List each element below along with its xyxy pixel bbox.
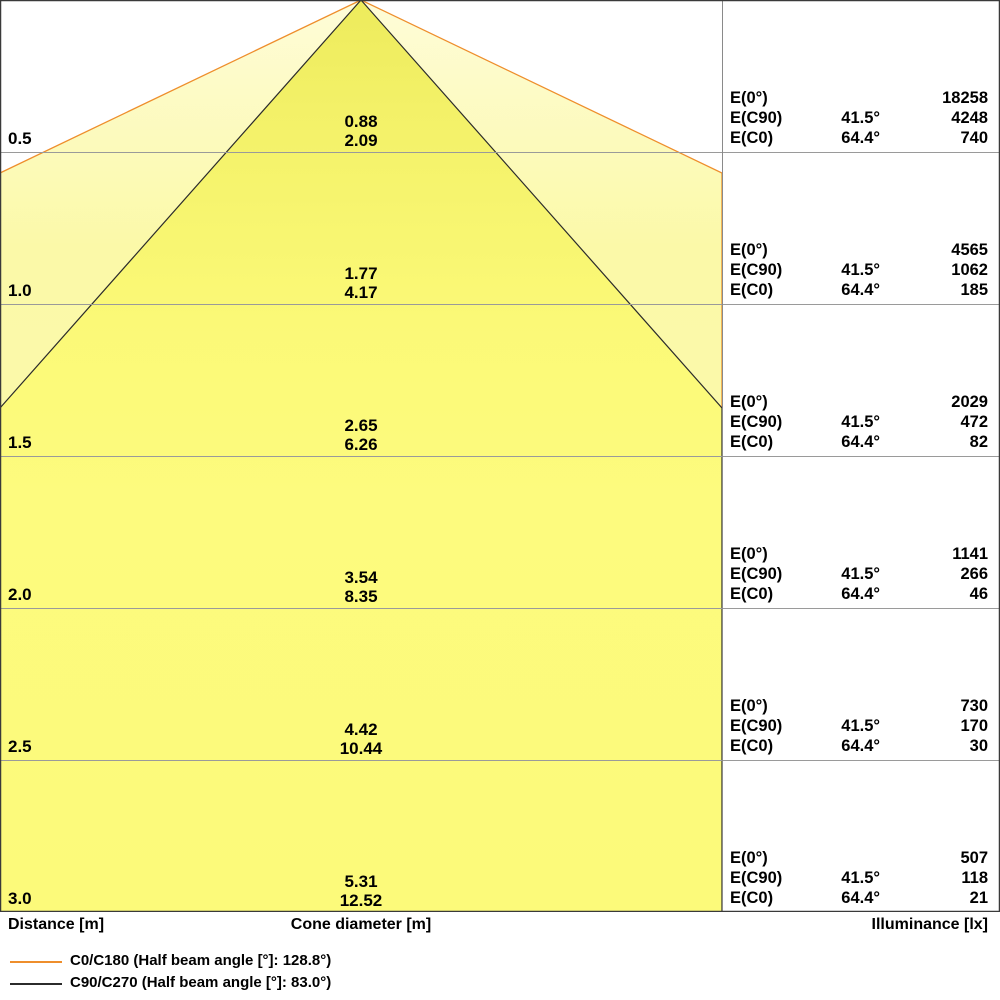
row-band: 0.5 0.88 2.09 E(0°)18258 E(C90)41.5°4248… — [0, 0, 1000, 152]
illuminance-table-cell: E(0°)1141 E(C90)41.5°266 E(C0)64.4°46 — [722, 545, 1000, 605]
cone-diameter-values: 3.54 8.35 — [0, 568, 722, 606]
ec0-angle: 64.4° — [841, 433, 880, 452]
ec90-angle: 41.5° — [841, 261, 880, 280]
ec0-label: E(C0) — [730, 585, 773, 604]
e0-value: 4565 — [951, 241, 988, 260]
e0-value: 18258 — [942, 89, 988, 108]
ec0-value: 185 — [960, 281, 988, 300]
ec90-value: 472 — [960, 413, 988, 432]
ec0-label: E(C0) — [730, 737, 773, 756]
cone-diameter-axis-label: Cone diameter [m] — [0, 916, 722, 934]
cone-diameter-c0: 10.44 — [0, 739, 722, 758]
c90-c270-line-swatch — [10, 983, 62, 985]
cone-diameter-c90: 2.65 — [0, 416, 722, 435]
illuminance-table-cell: E(0°)2029 E(C90)41.5°472 E(C0)64.4°82 — [722, 393, 1000, 453]
c0-c180-line-swatch — [10, 961, 62, 963]
ec90-label: E(C90) — [730, 109, 782, 128]
e0-label: E(0°) — [730, 393, 768, 412]
ec0-value: 21 — [970, 889, 988, 908]
ec90-value: 1062 — [951, 261, 988, 280]
ec0-angle: 64.4° — [841, 737, 880, 756]
ec90-angle: 41.5° — [841, 413, 880, 432]
ec0-angle: 64.4° — [841, 585, 880, 604]
cone-diameter-values: 0.88 2.09 — [0, 112, 722, 150]
illuminance-table-cell: E(0°)18258 E(C90)41.5°4248 E(C0)64.4°740 — [722, 89, 1000, 149]
legend-label: C0/C180 (Half beam angle [°]: 128.8°) — [70, 952, 331, 969]
light-cone-diagram: 0.5 0.88 2.09 E(0°)18258 E(C90)41.5°4248… — [0, 0, 1000, 1000]
ec90-angle: 41.5° — [841, 717, 880, 736]
legend-item-c90-c270: C90/C270 (Half beam angle [°]: 83.0°) — [0, 973, 1000, 995]
illuminance-axis-label: Illuminance [lx] — [872, 916, 988, 934]
illuminance-table-cell: E(0°)507 E(C90)41.5°118 E(C0)64.4°21 — [722, 849, 1000, 909]
cone-diameter-c90: 4.42 — [0, 720, 722, 739]
cone-diameter-c90: 3.54 — [0, 568, 722, 587]
ec0-angle: 64.4° — [841, 889, 880, 908]
e0-label: E(0°) — [730, 89, 768, 108]
ec0-value: 30 — [970, 737, 988, 756]
legend: C0/C180 (Half beam angle [°]: 128.8°) C9… — [0, 951, 1000, 995]
e0-value: 1141 — [952, 545, 988, 564]
e0-label: E(0°) — [730, 697, 768, 716]
cone-diameter-values: 1.77 4.17 — [0, 264, 722, 302]
row-band: 3.0 5.31 12.52 E(0°)507 E(C90)41.5°118 E… — [0, 760, 1000, 912]
cone-diameter-c90: 0.88 — [0, 112, 722, 131]
ec90-angle: 41.5° — [841, 565, 880, 584]
legend-label: C90/C270 (Half beam angle [°]: 83.0°) — [70, 974, 331, 991]
cone-diameter-c0: 12.52 — [0, 891, 722, 910]
ec90-value: 170 — [960, 717, 988, 736]
e0-label: E(0°) — [730, 545, 768, 564]
legend-item-c0-c180: C0/C180 (Half beam angle [°]: 128.8°) — [0, 951, 1000, 973]
e0-value: 2029 — [951, 393, 988, 412]
illuminance-table-cell: E(0°)730 E(C90)41.5°170 E(C0)64.4°30 — [722, 697, 1000, 757]
ec90-label: E(C90) — [730, 565, 782, 584]
cone-diameter-c0: 8.35 — [0, 587, 722, 606]
cone-diameter-c0: 4.17 — [0, 283, 722, 302]
row-band: 1.0 1.77 4.17 E(0°)4565 E(C90)41.5°1062 … — [0, 152, 1000, 304]
ec90-label: E(C90) — [730, 261, 782, 280]
axis-labels-row: Distance [m] Cone diameter [m] Illuminan… — [0, 916, 1000, 938]
cone-diameter-values: 2.65 6.26 — [0, 416, 722, 454]
ec90-value: 118 — [961, 869, 988, 888]
ec90-label: E(C90) — [730, 869, 782, 888]
ec0-label: E(C0) — [730, 281, 773, 300]
ec90-label: E(C90) — [730, 717, 782, 736]
ec0-label: E(C0) — [730, 129, 773, 148]
row-band: 2.5 4.42 10.44 E(0°)730 E(C90)41.5°170 E… — [0, 608, 1000, 760]
cone-diameter-c0: 6.26 — [0, 435, 722, 454]
ec90-value: 266 — [960, 565, 988, 584]
illuminance-table-cell: E(0°)4565 E(C90)41.5°1062 E(C0)64.4°185 — [722, 241, 1000, 301]
ec0-label: E(C0) — [730, 889, 773, 908]
ec0-value: 740 — [960, 129, 988, 148]
ec0-label: E(C0) — [730, 433, 773, 452]
cone-diameter-c90: 1.77 — [0, 264, 722, 283]
cone-diameter-c0: 2.09 — [0, 131, 722, 150]
cone-diameter-values: 5.31 12.52 — [0, 872, 722, 910]
e0-label: E(0°) — [730, 241, 768, 260]
ec90-angle: 41.5° — [841, 869, 880, 888]
ec0-angle: 64.4° — [841, 281, 880, 300]
cone-diameter-values: 4.42 10.44 — [0, 720, 722, 758]
e0-label: E(0°) — [730, 849, 768, 868]
ec90-value: 4248 — [951, 109, 988, 128]
row-band: 1.5 2.65 6.26 E(0°)2029 E(C90)41.5°472 E… — [0, 304, 1000, 456]
e0-value: 507 — [960, 849, 988, 868]
e0-value: 730 — [960, 697, 988, 716]
cone-diameter-c90: 5.31 — [0, 872, 722, 891]
ec0-angle: 64.4° — [841, 129, 880, 148]
ec0-value: 82 — [970, 433, 988, 452]
ec90-angle: 41.5° — [841, 109, 880, 128]
ec0-value: 46 — [970, 585, 988, 604]
row-band: 2.0 3.54 8.35 E(0°)1141 E(C90)41.5°266 E… — [0, 456, 1000, 608]
ec90-label: E(C90) — [730, 413, 782, 432]
